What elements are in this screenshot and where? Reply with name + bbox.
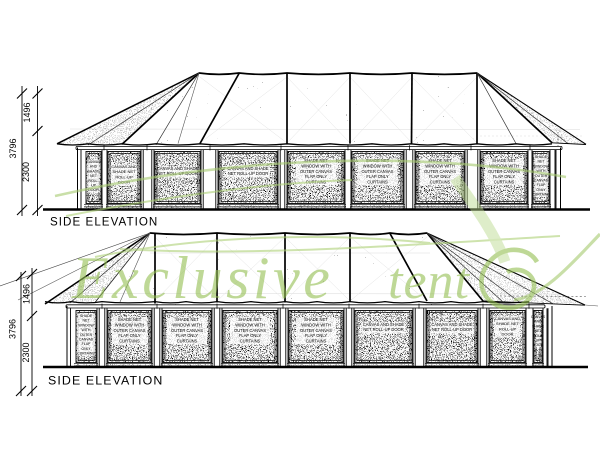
svg-text:ONLY: ONLY [536, 188, 546, 192]
svg-text:DOOR: DOOR [502, 332, 514, 337]
svg-text:CURTAINS: CURTAINS [494, 180, 515, 185]
svg-text:ROLL-: ROLL- [533, 334, 544, 338]
svg-text:CANVAS: CANVAS [534, 179, 549, 183]
svg-text:FLAP ONLY: FLAP ONLY [305, 333, 327, 338]
svg-text:CURTAINS: CURTAINS [177, 339, 198, 344]
svg-text:NET ROLL-UP DOOR: NET ROLL-UP DOOR [363, 327, 403, 332]
svg-text:3796: 3796 [8, 138, 18, 158]
svg-text:ROLL-: ROLL- [88, 179, 99, 183]
svg-text:NET ROLL-UP DOOR: NET ROLL-UP DOOR [228, 171, 268, 176]
svg-text:AND: AND [534, 320, 542, 324]
svg-text:WINDOW: WINDOW [78, 323, 94, 327]
svg-text:CANVAS: CANVAS [79, 338, 94, 342]
svg-text:FLAP ONLY: FLAP ONLY [305, 174, 327, 179]
svg-text:NET: NET [90, 174, 98, 178]
svg-text:WINDOW WITH: WINDOW WITH [301, 322, 331, 327]
svg-text:SHADE: SHADE [87, 169, 100, 173]
svg-text:WINDOW WITH: WINDOW WITH [172, 322, 202, 327]
svg-text:SIDE ELEVATION: SIDE ELEVATION [50, 216, 158, 229]
svg-text:FLAP ONLY: FLAP ONLY [176, 333, 198, 338]
svg-text:FLAP ONLY: FLAP ONLY [239, 333, 261, 338]
svg-text:OUTER CANVAS: OUTER CANVAS [300, 328, 332, 333]
svg-text:SHADE NET: SHADE NET [175, 317, 199, 322]
svg-text:WINDOW WITH: WINDOW WITH [115, 322, 145, 327]
svg-text:FLAP ONLY: FLAP ONLY [118, 333, 140, 338]
svg-text:WINDOW WITH: WINDOW WITH [363, 163, 393, 168]
svg-text:FLAP ONLY: FLAP ONLY [429, 174, 451, 179]
svg-text:FLAP: FLAP [537, 183, 546, 187]
svg-text:SHADE NET: SHADE NET [118, 317, 142, 322]
svg-text:OUTER: OUTER [80, 333, 93, 337]
svg-text:CURTAINS: CURTAINS [77, 352, 95, 356]
svg-text:3796: 3796 [7, 319, 17, 339]
svg-text:WINDOW: WINDOW [533, 164, 549, 168]
svg-text:CURTAINS: CURTAINS [430, 180, 451, 185]
svg-text:OUTER CANVAS: OUTER CANVAS [362, 169, 394, 174]
svg-text:SHADE: SHADE [80, 314, 93, 318]
svg-text:CURTAINS: CURTAINS [532, 193, 550, 197]
svg-text:WINDOW WITH: WINDOW WITH [235, 322, 265, 327]
svg-text:1496: 1496 [21, 284, 31, 304]
svg-text:AND: AND [90, 165, 98, 169]
svg-text:CURTAINS: CURTAINS [119, 339, 140, 344]
svg-text:OUTER CANVAS: OUTER CANVAS [234, 328, 266, 333]
svg-text:SHADE NET: SHADE NET [492, 158, 516, 163]
svg-text:CANVAS: CANVAS [86, 160, 101, 164]
svg-text:Exclusive: Exclusive [71, 245, 333, 311]
svg-text:OUTER CANVAS: OUTER CANVAS [114, 328, 146, 333]
svg-text:NET ROLL-UP DOOR: NET ROLL-UP DOOR [432, 327, 472, 332]
svg-text:OUTER CANVAS: OUTER CANVAS [171, 328, 203, 333]
svg-text:FLAP ONLY: FLAP ONLY [493, 174, 515, 179]
svg-text:OUTER CANVAS: OUTER CANVAS [424, 169, 456, 174]
svg-text:CURTAINS: CURTAINS [306, 339, 327, 344]
svg-text:NET: NET [535, 329, 543, 333]
svg-text:SHADE NET: SHADE NET [304, 317, 328, 322]
svg-text:UP: UP [536, 339, 542, 343]
svg-text:FLAP: FLAP [82, 342, 91, 346]
svg-text:1496: 1496 [22, 102, 32, 122]
svg-text:2300: 2300 [21, 162, 31, 182]
svg-text:tent: tent [388, 253, 471, 310]
svg-text:FLAP ONLY: FLAP ONLY [366, 174, 388, 179]
svg-text:CURTAINS: CURTAINS [367, 180, 388, 185]
svg-text:ONLY: ONLY [81, 347, 91, 351]
svg-text:WITH: WITH [82, 328, 91, 332]
svg-text:2300: 2300 [21, 342, 31, 362]
svg-text:SIDE ELEVATION: SIDE ELEVATION [48, 374, 163, 388]
svg-text:NET: NET [538, 160, 546, 164]
svg-text:CURTAINS: CURTAINS [240, 339, 261, 344]
svg-text:OUTER CANVAS: OUTER CANVAS [300, 169, 332, 174]
svg-text:SHADE: SHADE [535, 155, 548, 159]
svg-text:NET: NET [83, 319, 91, 323]
svg-text:WINDOW WITH: WINDOW WITH [301, 163, 331, 168]
svg-text:SHADE NET: SHADE NET [238, 317, 262, 322]
svg-text:DOOR: DOOR [533, 343, 544, 347]
